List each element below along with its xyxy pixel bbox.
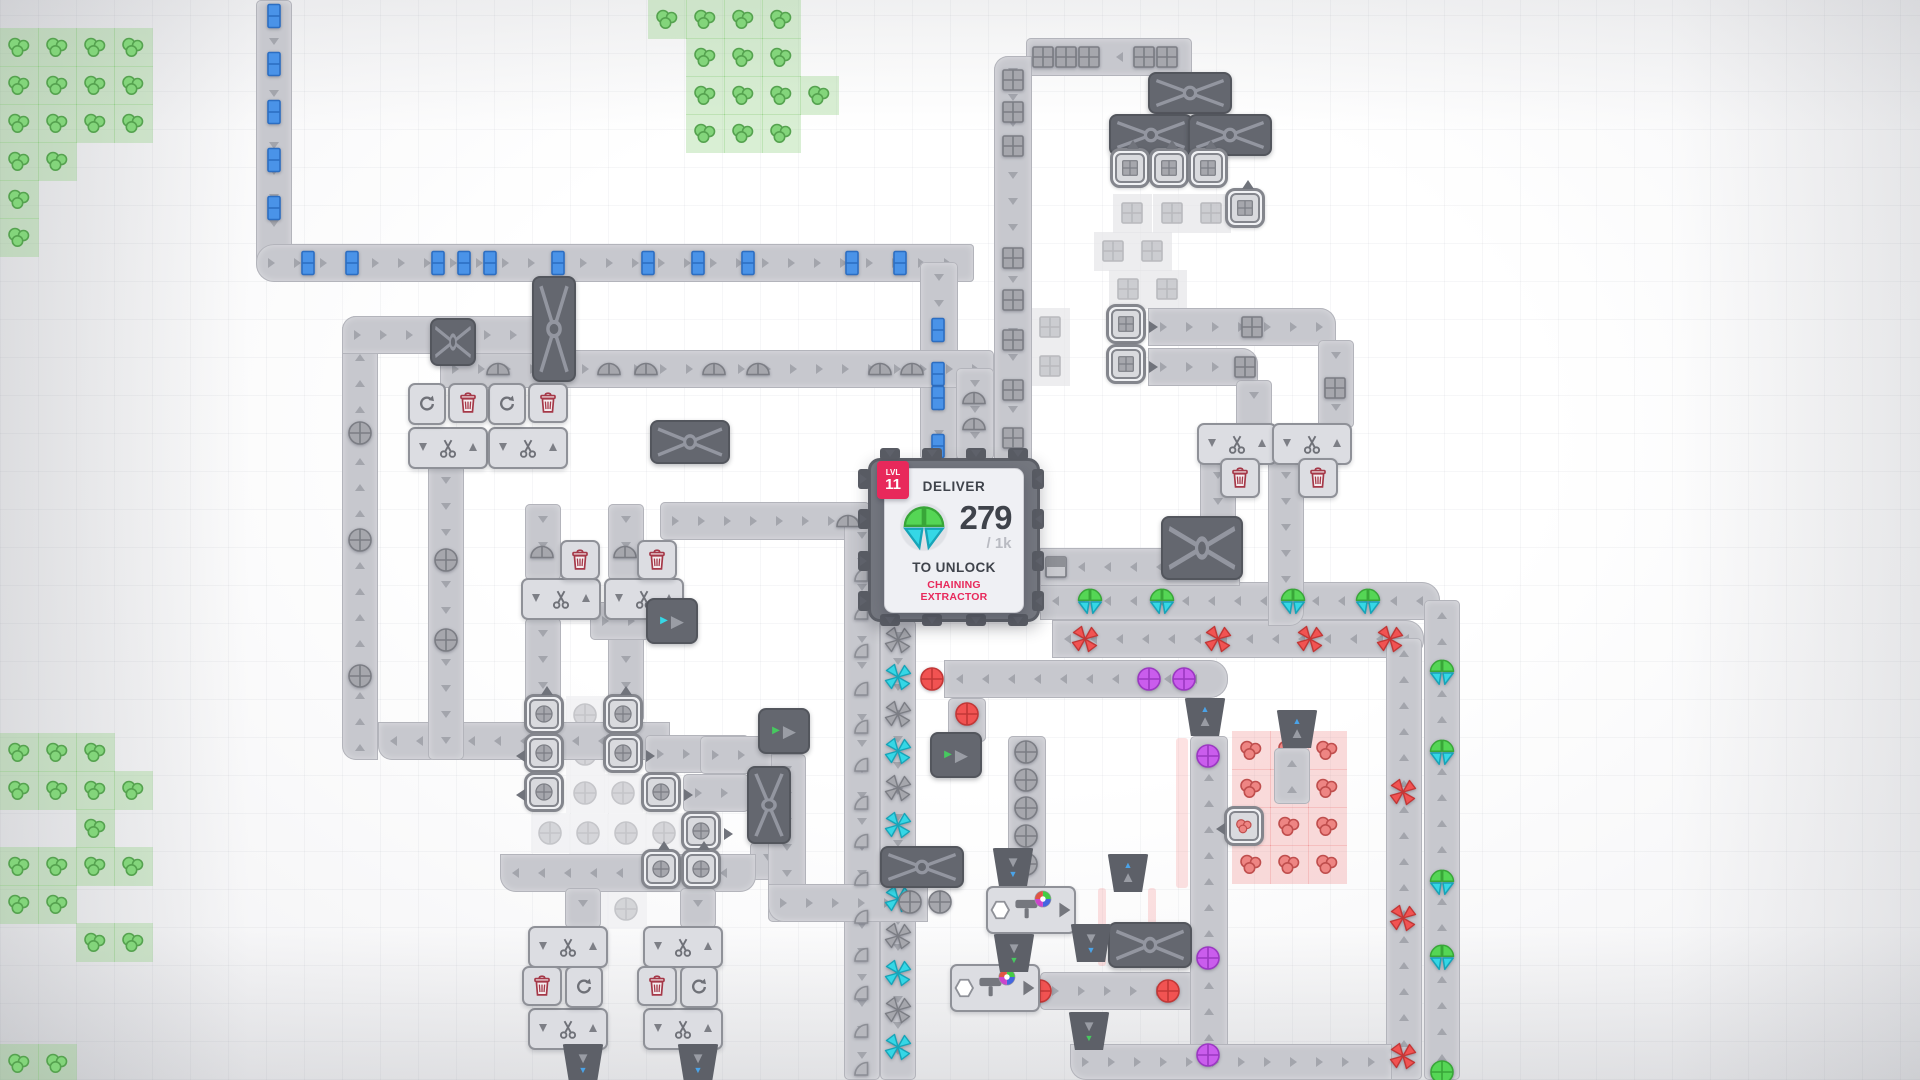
balancer-machine[interactable]: [1161, 516, 1243, 580]
belt-direction-arrow: [816, 364, 823, 374]
belt-direction-arrow: [1168, 634, 1175, 644]
hub-port-tab: [858, 591, 870, 611]
cutter-output-arrow: [532, 594, 540, 602]
belt-direction-arrow: [1390, 596, 1397, 606]
belt-direction-arrow: [1281, 498, 1291, 505]
balancer-machine[interactable]: [532, 276, 576, 382]
resource-node-icon: [42, 70, 72, 100]
belt-direction-arrow: [982, 674, 989, 684]
hub-port-arrow: [860, 596, 867, 606]
trash-machine[interactable]: [560, 540, 600, 580]
cutter-output-arrow: [615, 594, 623, 602]
shape-item-semi: [527, 537, 557, 567]
funnel-direction-icon: ▼: [1084, 931, 1099, 946]
resource-node-icon: [42, 146, 72, 176]
belt-launcher[interactable]: ▶▶: [646, 598, 698, 644]
extractor-window: [529, 777, 559, 807]
extractor-output-arrow: [658, 841, 670, 850]
conveyor-belt[interactable]: [1070, 1044, 1392, 1080]
goal-row: 279 / 1k: [893, 499, 1015, 555]
belt-direction-arrow: [802, 516, 809, 526]
resource-node-icon: [42, 889, 72, 919]
extractor-output-arrow: [1149, 321, 1158, 333]
belt-direction-arrow: [1116, 634, 1123, 644]
belt-direction-arrow: [1186, 1057, 1193, 1067]
belt-direction-arrow: [621, 656, 631, 663]
cutter-input-arrow: [589, 942, 597, 950]
resource-node-icon: [42, 32, 72, 62]
belt-direction-arrow: [1249, 392, 1259, 399]
conveyor-belt[interactable]: [1274, 748, 1310, 804]
balancer-machine[interactable]: [650, 420, 730, 464]
io-funnel[interactable]: ▼▼: [1069, 924, 1113, 962]
extractor-output-arrow: [1242, 180, 1254, 189]
belt-direction-arrow: [1260, 596, 1267, 606]
cutter-machine[interactable]: [408, 427, 488, 469]
belt-direction-arrow: [1437, 768, 1447, 775]
game-viewport[interactable]: ▼▼▼▼▲▲▼▼▼▼▲▲▲▲▼▼▼▼▶▶▶▶▶▶ LVL 11 DELIVER …: [0, 0, 1920, 1080]
funnel-direction-icon: ▼: [691, 1051, 706, 1066]
conveyor-belt[interactable]: [1052, 620, 1424, 658]
belt-direction-arrow: [1437, 638, 1447, 645]
belt-direction-arrow: [380, 330, 387, 340]
funnel-direction-icon: ▲: [1121, 870, 1136, 885]
extractor-window: [1229, 811, 1259, 841]
extractor-output-arrow: [516, 789, 525, 801]
belt-direction-arrow: [441, 607, 451, 614]
belt-direction-arrow: [1008, 198, 1018, 205]
shape-item-wedge: [847, 750, 877, 780]
extractor-machine[interactable]: [524, 694, 564, 734]
belt-direction-arrow: [268, 258, 275, 268]
belt-direction-arrow: [538, 630, 548, 637]
hub-port-tab: [1032, 509, 1044, 529]
shape-item-wedge: [847, 902, 877, 932]
belt-direction-arrow: [621, 516, 631, 523]
belt-launcher[interactable]: ▶▶: [758, 708, 810, 754]
cutter-input-arrow: [704, 1024, 712, 1032]
conveyor-belt[interactable]: [256, 0, 292, 268]
shape-item-circle: [431, 545, 461, 575]
belt-direction-arrow: [1368, 1057, 1375, 1067]
trash-machine[interactable]: [448, 383, 488, 423]
funnel-filter-icon: ▼: [1009, 870, 1018, 879]
io-funnel[interactable]: ▼▼: [561, 1044, 605, 1080]
belt-direction-arrow: [1008, 224, 1018, 231]
belt-direction-arrow: [660, 364, 667, 374]
balancer-machine[interactable]: [430, 318, 476, 366]
belt-direction-arrow: [712, 750, 719, 760]
goal-total: / 1k: [959, 535, 1011, 552]
extractor-window: [1111, 309, 1141, 339]
belt-direction-arrow: [355, 562, 365, 569]
cutter-machine[interactable]: [521, 578, 601, 620]
hub-port-tab: [1032, 469, 1044, 489]
extractor-machine[interactable]: [641, 849, 681, 889]
belt-direction-arrow: [372, 258, 379, 268]
shape-item-blue2: [837, 248, 867, 278]
shape-item-circle: [1427, 1057, 1457, 1080]
resource-node-icon: [1098, 236, 1128, 266]
extractor-window: [646, 854, 676, 884]
extractor-window: [608, 738, 638, 768]
cutter-input-arrow: [582, 594, 590, 602]
extractor-machine[interactable]: [1224, 806, 1264, 846]
belt-direction-arrow: [354, 330, 361, 340]
hub-port-tab: [1008, 614, 1028, 626]
shape-item-circle: [345, 418, 375, 448]
cutter-output-arrow: [1283, 439, 1291, 447]
belt-direction-arrow: [1324, 634, 1331, 644]
resource-node-icon: [4, 222, 34, 252]
launcher-filter-icon: ▶: [944, 750, 952, 760]
belt-direction-arrow: [1399, 884, 1409, 891]
belt-direction-arrow: [468, 736, 475, 746]
belt-direction-arrow: [1008, 674, 1015, 684]
extractor-window: [646, 777, 676, 807]
belt-direction-arrow: [416, 736, 423, 746]
rotator-machine[interactable]: [488, 383, 526, 425]
extractor-machine[interactable]: [1188, 148, 1228, 188]
extractor-output-arrow: [541, 686, 553, 695]
resource-node-icon: [766, 80, 796, 110]
belt-direction-arrow: [1399, 832, 1409, 839]
belt-direction-arrow: [776, 516, 783, 526]
balancer-machine[interactable]: [1148, 72, 1232, 114]
shape-item-semi: [483, 354, 513, 384]
belt-direction-arrow: [1130, 562, 1137, 572]
belt-direction-arrow: [1086, 674, 1093, 684]
extractor-machine[interactable]: [641, 772, 681, 812]
resource-node-icon: [42, 108, 72, 138]
resource-node-icon: [1152, 274, 1182, 304]
shape-item-umb: [1427, 867, 1457, 897]
belt-direction-arrow: [1008, 276, 1018, 283]
shape-item-pin: [883, 1032, 913, 1062]
shape-item-circle: [345, 661, 375, 691]
belt-direction-arrow: [1437, 820, 1447, 827]
shape-item-pin: [883, 773, 913, 803]
resource-node-icon: [728, 4, 758, 34]
belt-direction-arrow: [406, 330, 413, 340]
rotator-machine[interactable]: [408, 383, 446, 425]
trash-machine[interactable]: [528, 383, 568, 423]
belt-direction-arrow: [1160, 362, 1167, 372]
hub-port-tab: [880, 448, 900, 460]
balancer-machine[interactable]: [880, 846, 964, 888]
resource-node-icon: [804, 80, 834, 110]
belt-direction-arrow: [441, 581, 451, 588]
shape-item-circle: [1153, 976, 1183, 1006]
belt-direction-arrow: [1238, 1057, 1245, 1067]
cutter-input-arrow: [1333, 439, 1341, 447]
resource-node-icon: [42, 775, 72, 805]
shape-item-blue2: [923, 383, 953, 413]
hub-port-arrow: [885, 617, 895, 624]
balancer-machine[interactable]: [1108, 922, 1192, 968]
extractor-machine[interactable]: [603, 694, 643, 734]
trash-machine[interactable]: [637, 966, 677, 1006]
resource-node-icon: [80, 70, 110, 100]
belt-direction-arrow: [1204, 982, 1214, 989]
hub-port-tab: [880, 614, 900, 626]
extractor-machine[interactable]: [1149, 148, 1189, 188]
extractor-output-arrow: [1216, 823, 1225, 835]
shape-item-quad: [1230, 352, 1260, 382]
funnel-direction-icon: ▼: [1082, 1019, 1097, 1034]
hub-port-tab: [966, 448, 986, 460]
shape-item-semi: [743, 354, 773, 384]
belt-direction-arrow: [1116, 52, 1123, 62]
belt-direction-arrow: [1008, 354, 1018, 361]
belt-direction-arrow: [695, 788, 702, 798]
belt-direction-arrow: [1331, 404, 1341, 411]
extractor-window: [1193, 153, 1223, 183]
resource-node-icon: [80, 108, 110, 138]
shape-item-pin: [1388, 903, 1418, 933]
hub-port-arrow: [860, 514, 867, 524]
shape-item-pin: [1295, 624, 1325, 654]
hub-port-arrow: [1035, 596, 1042, 606]
belt-direction-arrow: [1194, 634, 1201, 644]
belt-direction-arrow: [355, 458, 365, 465]
cutter-machine[interactable]: [643, 1008, 723, 1050]
belt-direction-arrow: [782, 844, 792, 851]
hub-port-arrow: [860, 474, 867, 484]
extractor-machine[interactable]: [1225, 188, 1265, 228]
belt-direction-arrow: [1204, 826, 1214, 833]
belt-direction-arrow: [762, 258, 769, 268]
shape-item-wedge: [847, 712, 877, 742]
belt-direction-arrow: [441, 659, 451, 666]
belt-direction-arrow: [441, 529, 451, 536]
launcher-play-icon: ▶: [783, 723, 796, 740]
extractor-machine[interactable]: [1106, 304, 1146, 344]
trash-machine[interactable]: [1220, 458, 1260, 498]
belt-direction-arrow: [956, 674, 963, 684]
goal-progress: 279 / 1k: [959, 502, 1011, 551]
extractor-machine[interactable]: [681, 849, 721, 889]
belt-direction-arrow: [657, 749, 664, 759]
belt-direction-arrow: [1437, 612, 1447, 619]
shape-item-circle: [1011, 793, 1041, 823]
belt-direction-arrow: [1281, 524, 1291, 531]
delivered-count: 279: [959, 502, 1011, 533]
unlock-label: TO UNLOCK: [893, 560, 1015, 575]
shape-item-pin: [1203, 624, 1233, 654]
extractor-output-arrow: [1205, 140, 1217, 149]
cutter-input-arrow: [589, 1024, 597, 1032]
resource-node-icon: [766, 118, 796, 148]
belt-direction-arrow: [934, 274, 944, 281]
belt-direction-arrow: [842, 364, 849, 374]
shape-item-pin: [883, 699, 913, 729]
shape-item-quad: [998, 65, 1028, 95]
belt-direction-arrow: [1399, 676, 1409, 683]
conveyor-belt[interactable]: [1190, 736, 1228, 1080]
resource-node-icon: [611, 894, 641, 924]
belt-direction-arrow: [1134, 1057, 1141, 1067]
cutter-machine[interactable]: [488, 427, 568, 469]
shape-item-wedge: [847, 940, 877, 970]
cutter-machine[interactable]: [643, 926, 723, 968]
belt-direction-arrow: [683, 749, 690, 759]
belt-direction-arrow: [782, 870, 792, 877]
cutter-output-arrow: [1208, 439, 1216, 447]
cutter-input-arrow: [549, 443, 557, 451]
belt-direction-arrow: [1281, 576, 1291, 583]
extractor-machine[interactable]: [524, 733, 564, 773]
hub-delivery-panel[interactable]: LVL 11 DELIVER 279 / 1k TO UNLOCK CHAINI…: [884, 468, 1024, 613]
io-funnel[interactable]: ▼▼: [676, 1044, 720, 1080]
extractor-machine[interactable]: [524, 772, 564, 812]
balancer-machine[interactable]: [747, 766, 791, 844]
belt-direction-arrow: [1437, 924, 1447, 931]
conveyor-belt[interactable]: [428, 465, 464, 760]
hub-port-arrow: [1035, 556, 1042, 566]
level-number: 11: [885, 477, 901, 492]
shape-item-blue2: [259, 1, 289, 31]
rotator-machine[interactable]: [680, 966, 718, 1008]
belt-direction-arrow: [538, 516, 548, 523]
belt-direction-arrow: [806, 898, 813, 908]
belt-direction-arrow: [832, 898, 839, 908]
extractor-machine[interactable]: [1110, 148, 1150, 188]
shape-item-wedge: [847, 636, 877, 666]
shape-item-wedge: [847, 1016, 877, 1046]
funnel-direction-icon: ▼: [576, 1051, 591, 1066]
belt-direction-arrow: [398, 258, 405, 268]
painter-machine[interactable]: [986, 886, 1076, 934]
hub-port-arrow: [927, 450, 937, 457]
shape-item-blue2: [683, 248, 713, 278]
resource-node-icon: [728, 42, 758, 72]
shape-item-pin: [883, 921, 913, 951]
extractor-window: [1115, 153, 1145, 183]
resource-node-icon: [1035, 312, 1065, 342]
resource-node-icon: [1236, 773, 1266, 803]
resource-node-icon: [1312, 773, 1342, 803]
belt-direction-arrow: [1142, 634, 1149, 644]
extractor-machine[interactable]: [603, 733, 643, 773]
shape-item-blue2: [885, 248, 915, 278]
io-funnel[interactable]: ▲▲: [1106, 854, 1150, 892]
belt-direction-arrow: [814, 258, 821, 268]
shape-item-circle: [1011, 765, 1041, 795]
resource-node-icon: [690, 118, 720, 148]
belt-direction-arrow: [857, 818, 867, 825]
conveyor-belt[interactable]: [1386, 638, 1422, 1080]
conveyor-belt[interactable]: [565, 888, 601, 928]
shape-item-wedge: [847, 788, 877, 818]
hub-port-arrow: [971, 450, 981, 457]
cutter-machine[interactable]: [528, 1008, 608, 1050]
hub-port-arrow: [860, 556, 867, 566]
resource-node-icon: [118, 32, 148, 62]
shape-item-semi: [865, 354, 895, 384]
belt-direction-arrow: [720, 868, 727, 878]
highlight-overlay: [1176, 738, 1188, 888]
shape-item-umb: [1075, 586, 1105, 616]
shape-item-circle: [895, 887, 925, 917]
resource-node-icon: [118, 70, 148, 100]
shape-item-circle: [1134, 664, 1164, 694]
belt-direction-arrow: [355, 692, 365, 699]
launcher-play-icon: ▶: [955, 747, 968, 764]
shape-item-pin: [883, 958, 913, 988]
rotator-machine[interactable]: [565, 966, 603, 1008]
shape-item-two: [1041, 552, 1071, 582]
shape-item-circle: [1193, 943, 1223, 973]
belt-launcher[interactable]: ▶▶: [930, 732, 982, 778]
conveyor-belt[interactable]: [1236, 380, 1272, 428]
resource-node-icon: [4, 889, 34, 919]
shape-item-wedge: [847, 1054, 877, 1080]
resource-node-icon: [4, 184, 34, 214]
belt-direction-arrow: [1160, 322, 1167, 332]
resource-node-icon: [652, 4, 682, 34]
io-funnel[interactable]: ▲▲: [1183, 698, 1227, 736]
belt-direction-arrow: [1399, 936, 1409, 943]
resource-node-icon: [80, 775, 110, 805]
belt-direction-arrow: [738, 750, 745, 760]
shape-item-quad: [998, 97, 1028, 127]
belt-direction-arrow: [355, 380, 365, 387]
cutter-output-arrow: [654, 1024, 662, 1032]
shape-item-wedge: [847, 674, 877, 704]
belt-direction-arrow: [1208, 596, 1215, 606]
trash-machine[interactable]: [1298, 458, 1338, 498]
shape-item-umb: [1427, 657, 1457, 687]
cutter-machine[interactable]: [528, 926, 608, 968]
resource-node-icon: [118, 927, 148, 957]
belt-direction-arrow: [1052, 596, 1059, 606]
belt-direction-arrow: [1437, 846, 1447, 853]
belt-direction-arrow: [866, 258, 873, 268]
shape-item-semi: [699, 354, 729, 384]
resource-node-icon: [1236, 849, 1266, 879]
hub-port-tab: [922, 448, 942, 460]
belt-direction-arrow: [538, 868, 545, 878]
belt-direction-arrow: [1281, 472, 1291, 479]
belt-direction-arrow: [1078, 562, 1085, 572]
shape-item-blue2: [475, 248, 505, 278]
extractor-window: [1230, 193, 1260, 223]
belt-direction-arrow: [686, 364, 693, 374]
resource-node-icon: [1196, 198, 1226, 228]
belt-direction-arrow: [1204, 800, 1214, 807]
cutter-output-arrow: [499, 443, 507, 451]
extractor-output-arrow: [724, 828, 733, 840]
resource-node-icon: [80, 32, 110, 62]
funnel-direction-icon: ▼: [1006, 855, 1021, 870]
trash-machine[interactable]: [522, 966, 562, 1006]
belt-direction-arrow: [1104, 986, 1111, 996]
hub-port-tab: [858, 469, 870, 489]
belt-direction-arrow: [572, 736, 579, 746]
shape-item-umb: [1353, 586, 1383, 616]
conveyor-belt[interactable]: [680, 888, 716, 928]
trash-machine[interactable]: [637, 540, 677, 580]
funnel-direction-icon: ▲: [1290, 726, 1305, 741]
belt-direction-arrow: [1034, 674, 1041, 684]
belt-direction-arrow: [441, 477, 451, 484]
resource-node-icon: [80, 851, 110, 881]
resource-node-icon: [1312, 849, 1342, 879]
extractor-machine[interactable]: [1106, 344, 1146, 384]
extractor-output-arrow: [1149, 361, 1158, 373]
belt-direction-arrow: [1316, 322, 1323, 332]
